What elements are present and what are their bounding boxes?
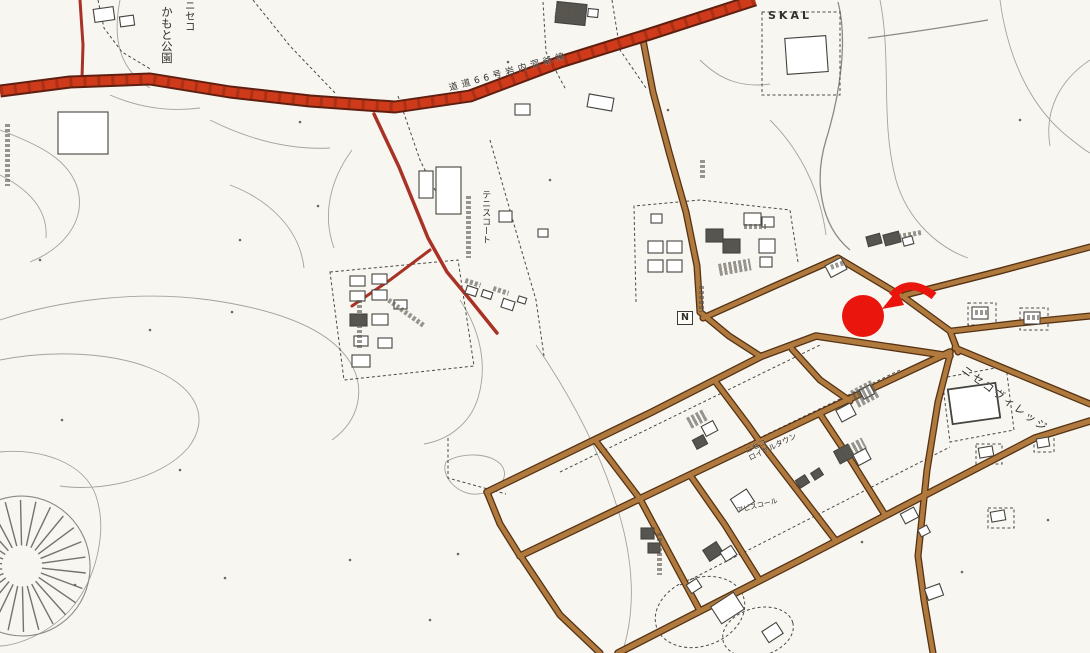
building [711,592,745,623]
contour-line [0,175,46,238]
contour-line [0,451,101,646]
road [905,247,1090,295]
road [715,381,760,442]
hatched-slope-feature [0,487,99,645]
building [436,167,461,214]
dashed-boundary [560,345,820,472]
building [648,241,663,253]
contour-line [210,120,330,148]
building [811,468,824,480]
building [587,94,614,111]
map-dot [231,311,234,314]
building [352,355,370,367]
building [378,338,392,348]
contour-line [424,300,482,444]
contour-line [1049,60,1090,146]
building [1036,437,1049,448]
map-dot [1047,519,1050,522]
building [667,260,682,272]
building [58,112,108,154]
contour-line [770,120,826,235]
building [667,241,682,253]
building [372,290,387,300]
contour-line [880,0,968,258]
contour-line [110,95,200,109]
building [555,1,587,25]
building [641,528,654,539]
brown-roads-layer [487,40,1090,653]
road [820,414,885,515]
building [588,8,599,17]
road [792,349,850,401]
map-dot [549,179,552,182]
map-dot [667,109,670,112]
building [902,236,914,246]
slope-hatch-line [27,585,39,630]
dashed-boundary [490,140,544,356]
building [720,545,737,561]
road [487,336,950,492]
building [515,104,530,115]
map-dot [299,121,302,124]
contour-line [0,296,359,440]
map-dots-layer [39,61,1050,622]
slope-hatch-line [15,500,27,545]
gray-roads-layer [820,2,988,250]
slope-hatch-line [17,587,29,632]
map-dot [507,61,510,64]
map-dot [457,553,460,556]
map-dot [224,577,227,580]
map-dot [349,559,352,562]
building [119,15,134,27]
building [499,211,512,222]
road [700,312,760,356]
slope-hatch-line [36,578,66,618]
building [692,435,707,449]
map-dot [961,571,964,574]
map-svg [0,0,1090,653]
building [744,213,761,225]
building [762,217,774,227]
building [538,229,548,237]
building [948,383,1000,424]
map-dot [861,541,864,544]
map-dot [39,259,42,262]
red-roads-layer [80,0,497,333]
building [481,290,493,300]
contour-lines-layer [0,0,1090,653]
building [93,7,115,23]
map-dot [74,584,77,587]
dashed-boundary [253,0,336,94]
contour-line [0,354,199,488]
map-dot [317,205,320,208]
slope-outline [0,487,99,645]
contour-line [700,60,770,85]
slope-hatch-line [39,542,83,559]
road [760,442,836,541]
contour-line [230,185,304,268]
road [520,352,950,556]
building [990,510,1006,522]
contour-line [1000,0,1090,153]
building [760,257,772,267]
map-dot [149,329,152,332]
building [701,421,718,437]
slope-hatch-line [20,502,41,546]
map-canvas: ニセコかもと公園道道66号岩内洞爺線SKALテニスコートニセコ ロイヤルタウンニ… [0,0,1090,653]
building [723,239,740,253]
building [762,622,783,642]
map-dot [61,419,64,422]
gray-road [868,20,988,38]
building [651,214,662,223]
slope-hatch-line [2,586,23,630]
location-marker [842,295,884,337]
building [394,300,407,309]
building [354,336,368,346]
building [972,307,988,319]
building [350,314,367,326]
building [978,446,994,458]
slope-hatch-line [42,557,86,563]
slope-hatch-line [0,584,18,624]
slope-hatch-line [35,528,77,554]
building [350,276,365,286]
building [703,542,723,562]
building [648,260,663,272]
red-road [80,0,83,78]
road-casing [487,336,950,492]
map-dot [239,239,242,242]
building [706,229,723,242]
building [350,291,365,301]
building [924,584,943,601]
building [785,36,828,75]
building [648,543,660,553]
contour-line [328,150,352,248]
map-dot [1019,119,1022,122]
building [517,296,526,304]
building [501,298,515,310]
building [759,239,775,253]
slope-hatch-line [0,553,2,570]
building [730,489,754,512]
building [419,171,433,198]
slope-hatch-line [5,501,17,546]
building [1024,312,1040,324]
map-dot [179,469,182,472]
building [372,274,387,284]
red-road [374,114,497,333]
building [866,233,882,246]
building [883,231,901,246]
building [372,314,388,325]
map-dot [429,619,432,622]
buildings-layer [58,1,1050,642]
